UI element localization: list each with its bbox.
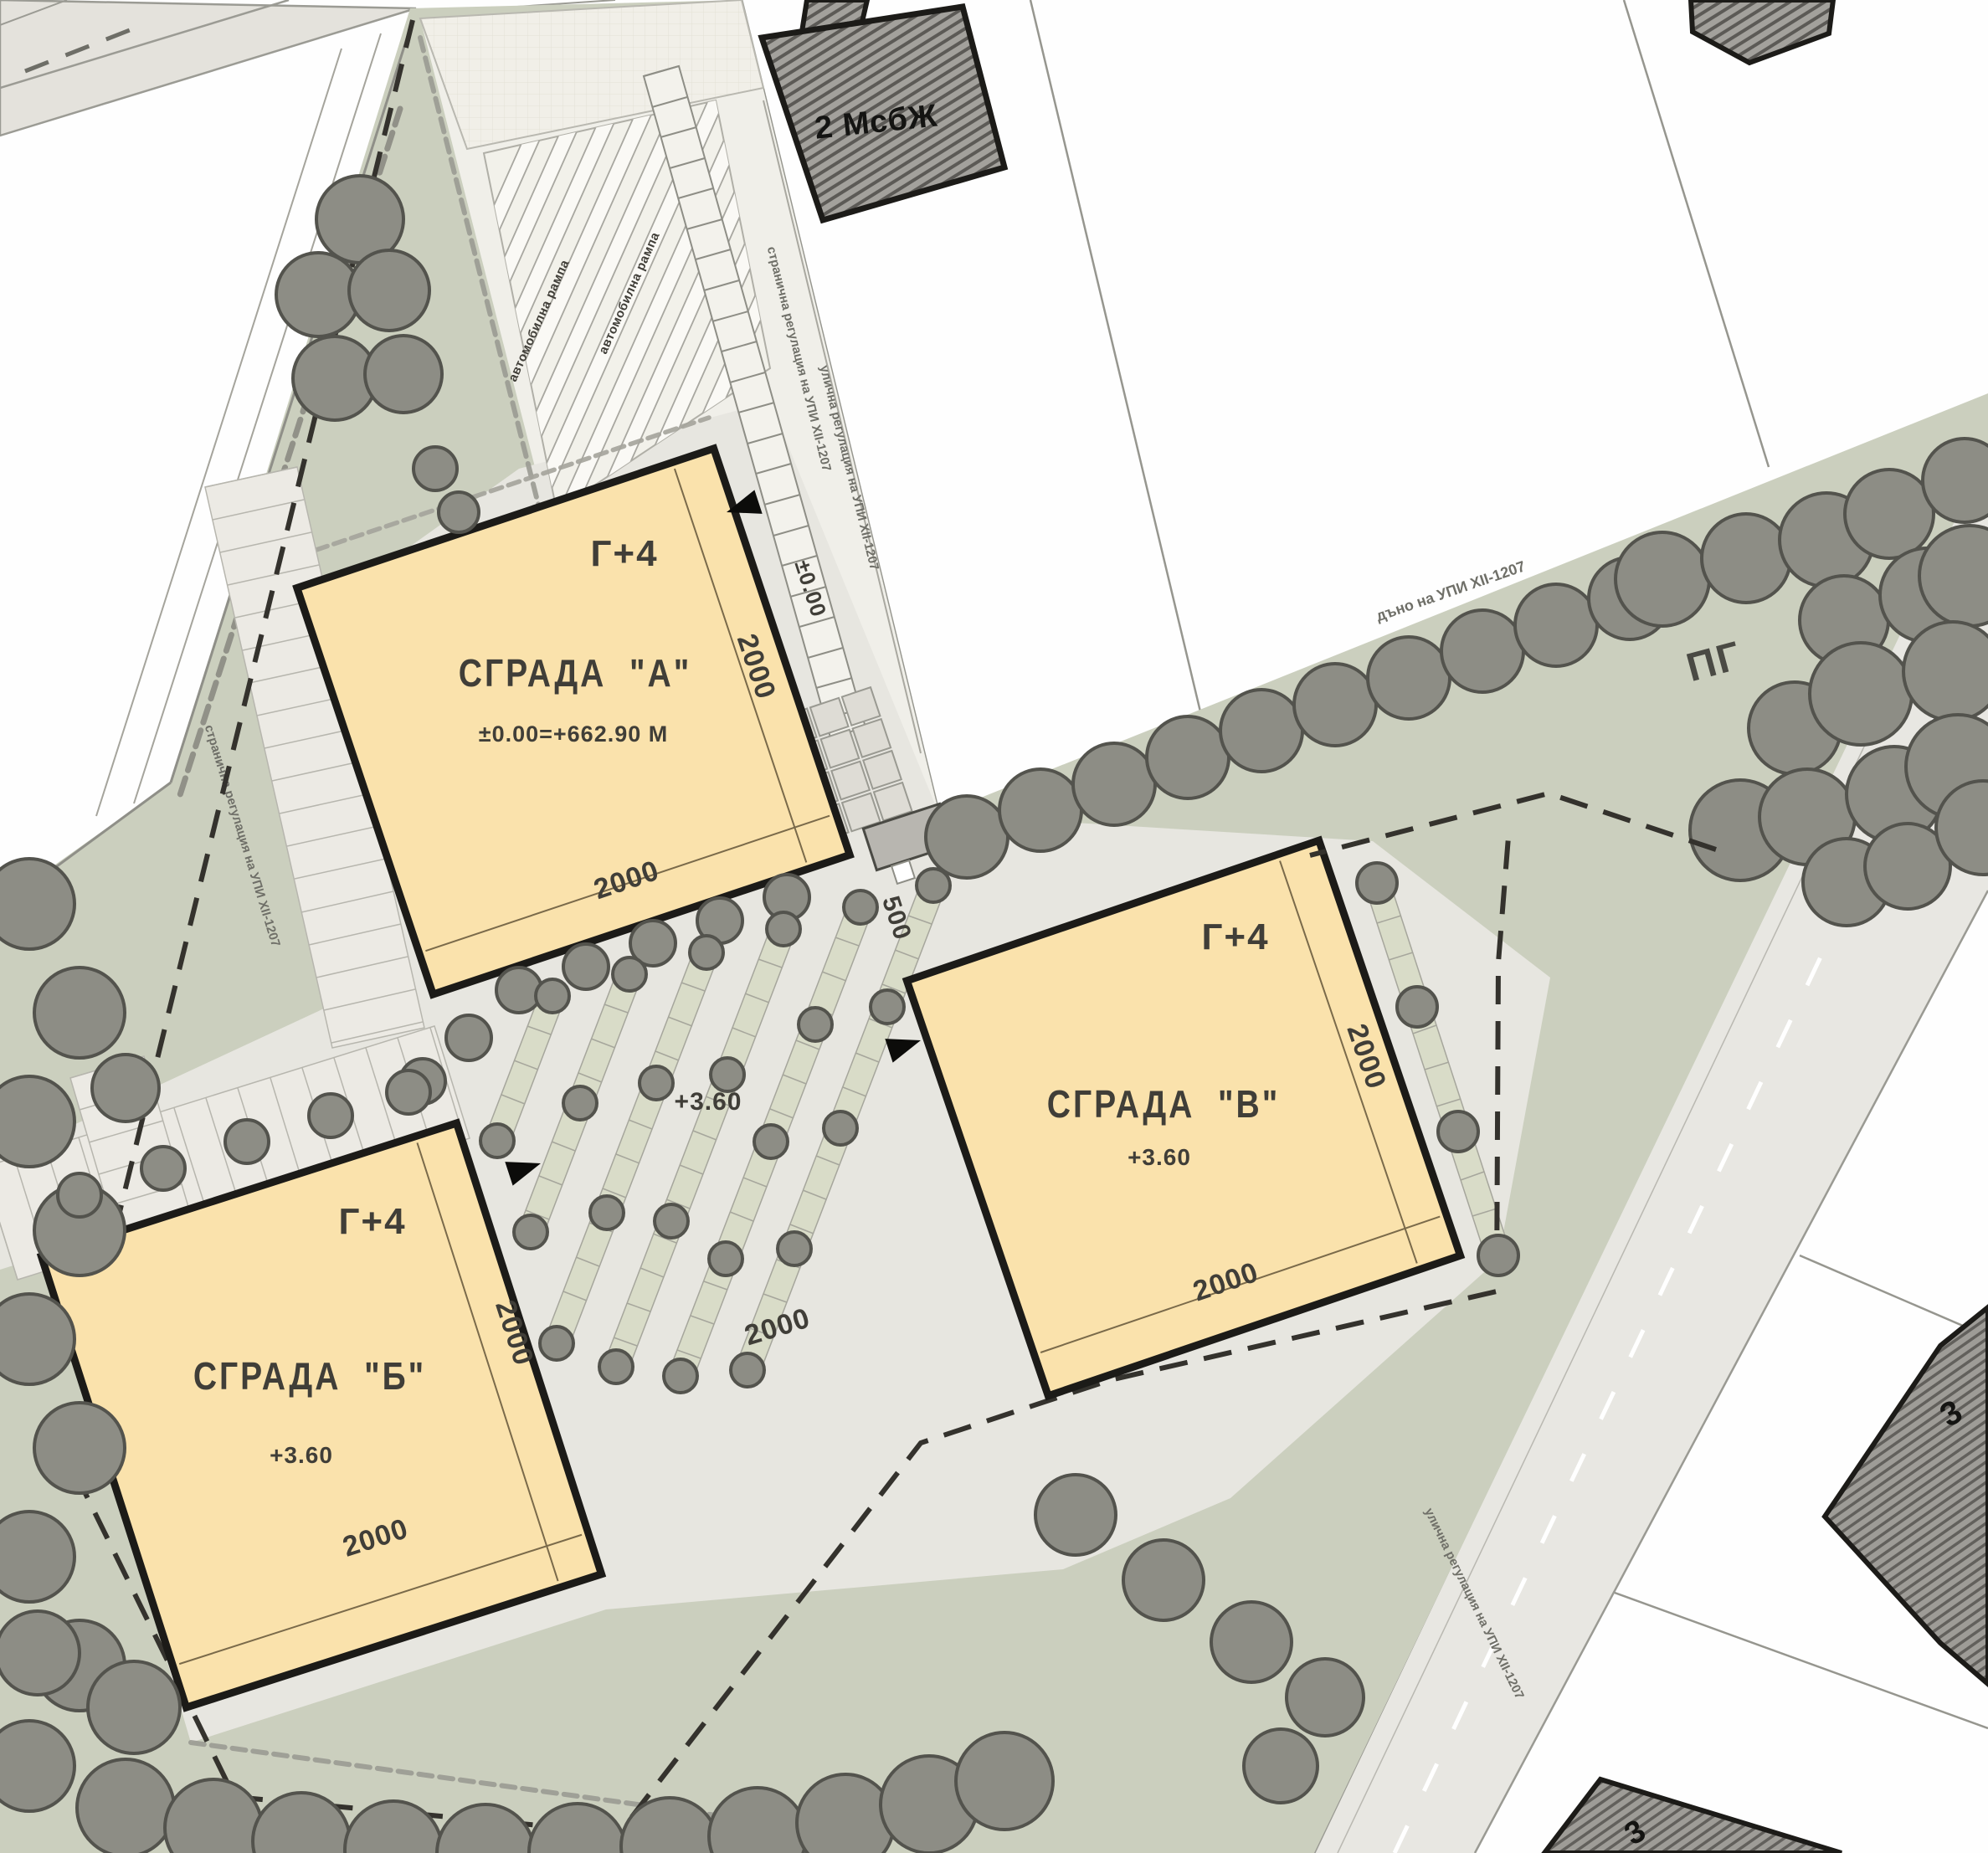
svg-text:СГРАДА "А": СГРАДА "А" xyxy=(459,652,691,696)
svg-text:+3.60: +3.60 xyxy=(1128,1144,1191,1170)
svg-text:Г+4: Г+4 xyxy=(338,1201,406,1242)
svg-text:+3.60: +3.60 xyxy=(270,1442,333,1468)
svg-text:СГРАДА "В": СГРАДА "В" xyxy=(1047,1083,1280,1127)
svg-text:Г+4: Г+4 xyxy=(590,533,658,574)
svg-text:±0.00=+662.90 М: ±0.00=+662.90 М xyxy=(479,721,668,747)
svg-text:Г+4: Г+4 xyxy=(1201,916,1269,957)
svg-text:СГРАДА "Б": СГРАДА "Б" xyxy=(193,1355,426,1399)
